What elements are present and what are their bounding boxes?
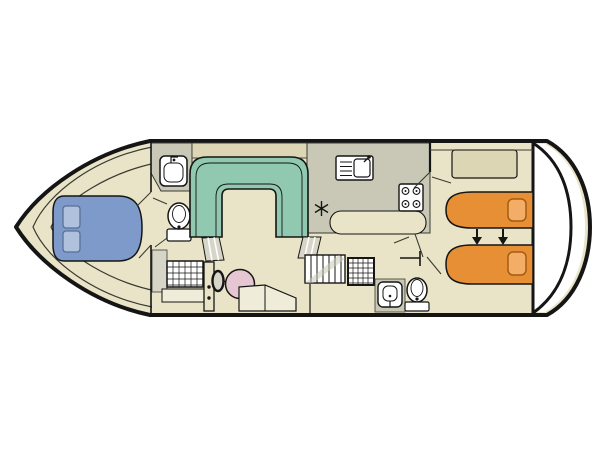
galley-counter-peninsula (330, 211, 426, 234)
door-handle-dot (207, 285, 210, 288)
sideboard-behind-sofa (192, 143, 307, 158)
bow-double-bed (53, 196, 142, 261)
wardrobe (452, 150, 517, 178)
pillow (508, 252, 526, 275)
aft-washbasin-icon (375, 279, 405, 312)
boat-floorplan-image (0, 0, 600, 450)
front-toilet-icon (167, 203, 191, 241)
hob-icon (399, 184, 423, 211)
aft-toilet-icon (405, 278, 429, 311)
pillow (63, 231, 80, 252)
aft-shower-grid (348, 258, 374, 285)
pillow (508, 199, 526, 221)
stairs (305, 255, 345, 283)
shower-bench (162, 289, 205, 302)
shower-wall-panel (152, 250, 167, 292)
boat-floorplan-svg (0, 0, 600, 450)
front-washbasin-icon (160, 156, 187, 186)
galley-sink-icon (336, 155, 373, 180)
helm-column (213, 271, 224, 291)
pillow (63, 206, 80, 228)
door-handle-dot (207, 296, 210, 299)
